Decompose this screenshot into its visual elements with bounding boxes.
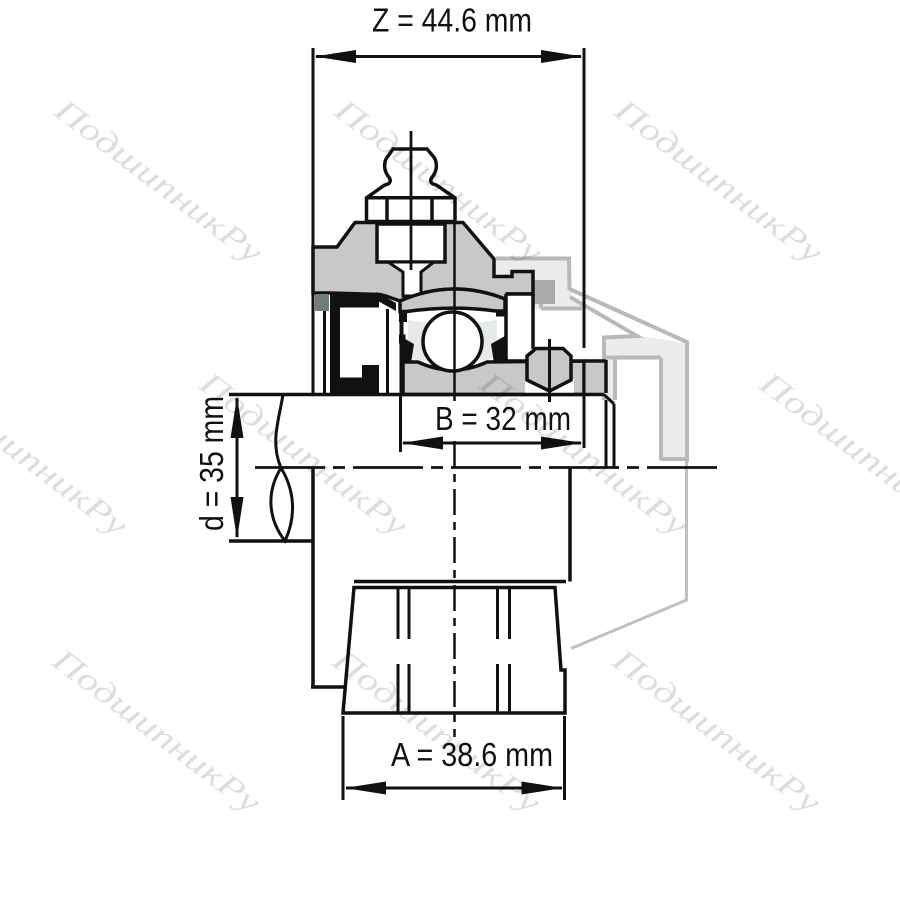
svg-text:d = 35 mm: d = 35 mm xyxy=(193,396,230,531)
svg-text:Z = 44.6 mm: Z = 44.6 mm xyxy=(372,2,532,39)
